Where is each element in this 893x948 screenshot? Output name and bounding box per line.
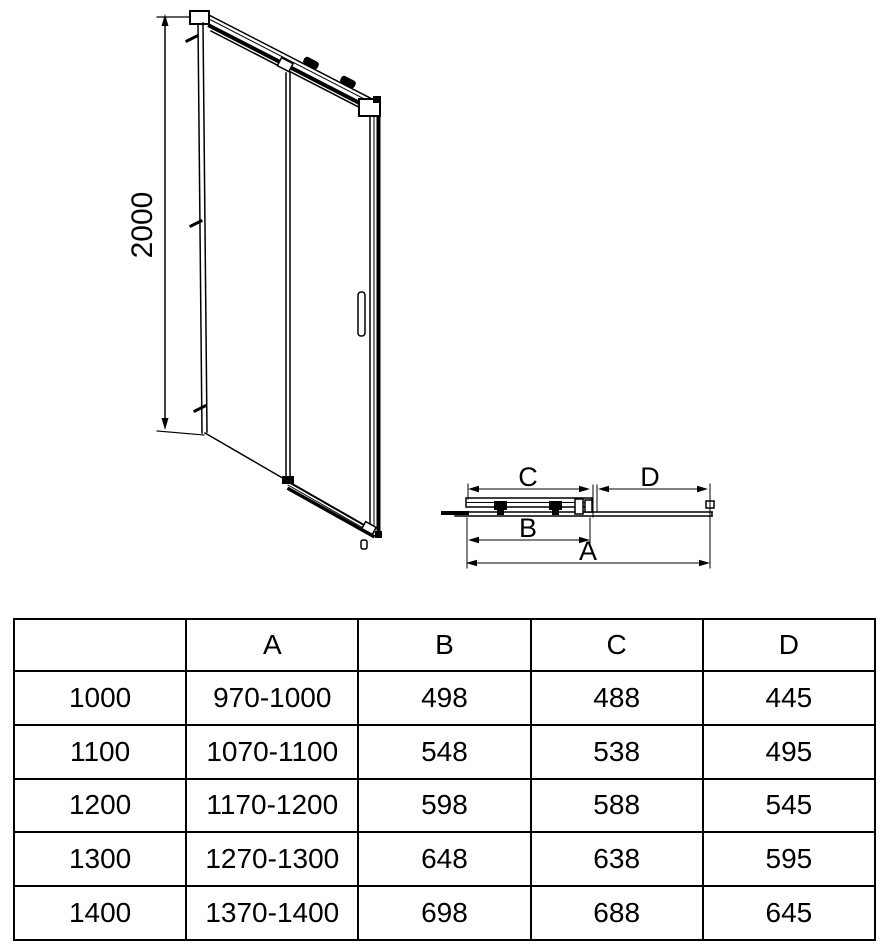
- table-header-cell: [14, 619, 186, 671]
- dim-label-b: B: [519, 513, 537, 543]
- roller-icon: [494, 501, 507, 510]
- front-view: 2000: [126, 11, 382, 549]
- table-cell: 498: [358, 671, 530, 725]
- top-rail: [209, 15, 376, 116]
- arrow-up-icon: [162, 14, 169, 26]
- table-cell-size: 1300: [14, 832, 186, 886]
- corner-bracket: [359, 96, 381, 116]
- table-cell: 1270-1300: [186, 832, 358, 886]
- guide-knob-icon: [361, 540, 367, 549]
- door-handle: [358, 292, 365, 336]
- table-cell: 445: [703, 671, 875, 725]
- table-cell: 688: [531, 886, 703, 940]
- left-wall-profile: [187, 11, 209, 433]
- table-cell-size: 1400: [14, 886, 186, 940]
- roller-icon: [497, 510, 504, 515]
- middle-stile: [282, 72, 294, 484]
- table-cell: 545: [703, 779, 875, 833]
- table-cell-size: 1100: [14, 725, 186, 779]
- wall-tab-icon: [195, 406, 205, 411]
- table-header-cell: C: [531, 619, 703, 671]
- table-cell: 1070-1100: [186, 725, 358, 779]
- table-cell: 648: [358, 832, 530, 886]
- dimensions-table: A B C D 1000 970-1000 498 488 445 1100 1…: [13, 618, 876, 941]
- dim-label-a: A: [579, 536, 597, 566]
- table-header-cell: A: [186, 619, 358, 671]
- bottom-rail: [287, 481, 376, 549]
- table-header-row: A B C D: [14, 619, 875, 671]
- roller-icon: [552, 510, 559, 515]
- table-row: 1300 1270-1300 648 638 595: [14, 832, 875, 886]
- roller-icon: [549, 501, 562, 510]
- table-cell: 698: [358, 886, 530, 940]
- technical-drawing: 2000: [0, 0, 893, 600]
- dim-label-c: C: [518, 462, 538, 492]
- table-cell: 645: [703, 886, 875, 940]
- table-cell: 538: [531, 725, 703, 779]
- rail-clamp: [277, 58, 293, 72]
- end-bracket: [585, 500, 592, 512]
- table-cell: 548: [358, 725, 530, 779]
- table-header-cell: B: [358, 619, 530, 671]
- dim-label-d: D: [640, 462, 660, 492]
- right-stile: [370, 116, 382, 538]
- table-cell-size: 1000: [14, 671, 186, 725]
- table-cell: 638: [531, 832, 703, 886]
- top-view: C D B A: [441, 462, 714, 568]
- arrow-down-icon: [162, 418, 169, 430]
- table-header-cell: D: [703, 619, 875, 671]
- table-cell: 495: [703, 725, 875, 779]
- table-cell: 1170-1200: [186, 779, 358, 833]
- table-row: 1100 1070-1100 548 538 495: [14, 725, 875, 779]
- table-row: 1200 1170-1200 598 588 545: [14, 779, 875, 833]
- height-dimension-label: 2000: [126, 192, 159, 259]
- table-row: 1000 970-1000 498 488 445: [14, 671, 875, 725]
- end-bracket: [575, 499, 583, 514]
- table-cell: 595: [703, 832, 875, 886]
- table-row: 1400 1370-1400 698 688 645: [14, 886, 875, 940]
- glass-bottom-edge: [205, 433, 286, 480]
- table-cell: 588: [531, 779, 703, 833]
- table-cell-size: 1200: [14, 779, 186, 833]
- dimensions-table-wrap: A B C D 1000 970-1000 498 488 445 1100 1…: [13, 618, 876, 941]
- table-cell: 488: [531, 671, 703, 725]
- table-cell: 1370-1400: [186, 886, 358, 940]
- wall-tab-icon: [187, 36, 197, 41]
- table-cell: 970-1000: [186, 671, 358, 725]
- table-cell: 598: [358, 779, 530, 833]
